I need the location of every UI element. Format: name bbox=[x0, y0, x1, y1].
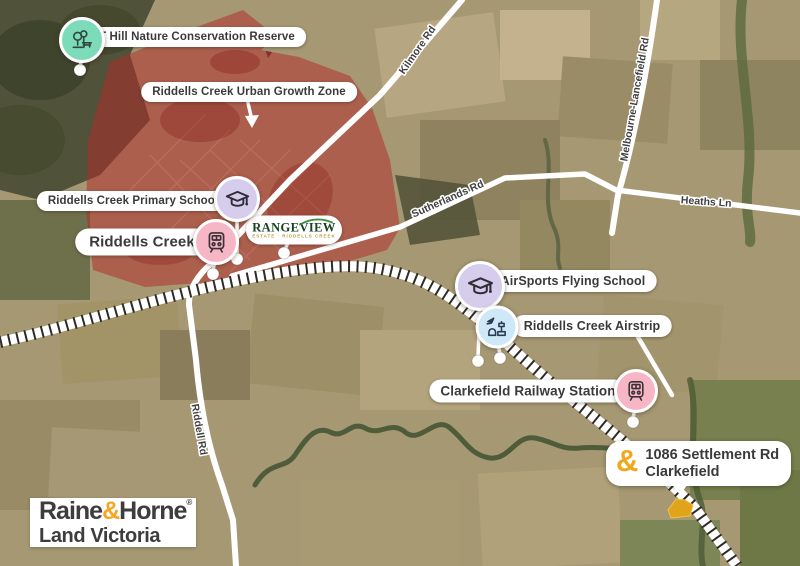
marker-nature-reserve bbox=[59, 17, 105, 63]
rangeview-estate-logo: RANGEVIEW ESTATE · RIDDELLS CREEK bbox=[246, 216, 342, 245]
marker-riddells-creek-train bbox=[193, 219, 239, 265]
property-address-text: 1086 Settlement Rd Clarkefield bbox=[645, 447, 779, 480]
label-primary-school: Riddells Creek Primary School bbox=[37, 191, 229, 211]
label-riddells-creek-airstrip: Riddells Creek Airstrip bbox=[513, 315, 672, 337]
airport-tower-icon bbox=[485, 315, 510, 340]
rangeview-swoosh-icon bbox=[299, 216, 333, 226]
graduation-cap-icon bbox=[466, 272, 495, 301]
train-icon bbox=[624, 379, 648, 403]
road-label-heaths: Heaths Ln bbox=[680, 194, 731, 210]
raine-and-horne-wordmark: Raine&Horne® bbox=[39, 499, 196, 524]
park-trees-icon bbox=[69, 27, 95, 53]
property-address-line2: Clarkefield bbox=[645, 464, 719, 480]
aerial-map: Kilmore Rd Melbourne-Lancefield Rd Suthe… bbox=[0, 0, 800, 566]
graduation-cap-icon bbox=[224, 186, 251, 213]
marker-clarkefield-train bbox=[614, 369, 658, 413]
marker-airsports-school bbox=[455, 261, 505, 311]
label-urban-growth-zone: Riddells Creek Urban Growth Zone bbox=[141, 82, 357, 102]
ampersand-icon: & bbox=[616, 449, 638, 474]
label-riddells-creek-town: Riddells Creek bbox=[75, 229, 209, 256]
logo-land-victoria: Land Victoria bbox=[39, 526, 196, 546]
train-icon bbox=[204, 230, 229, 255]
label-nature-reserve: T Hill Nature Conservation Reserve bbox=[88, 27, 306, 47]
marker-primary-school bbox=[214, 176, 260, 222]
logo-horne: Horne bbox=[119, 497, 186, 525]
logo-ampersand: & bbox=[102, 497, 119, 525]
property-address-line1: 1086 Settlement Rd bbox=[645, 447, 779, 463]
logo-raine: Raine bbox=[39, 497, 102, 525]
property-address-label: & 1086 Settlement Rd Clarkefield bbox=[606, 441, 791, 486]
label-airsports-flying-school: AirSports Flying School bbox=[490, 270, 657, 292]
marker-airstrip bbox=[476, 306, 519, 349]
label-clarkefield-station: Clarkefield Railway Station bbox=[429, 380, 626, 403]
property-pointer bbox=[672, 484, 688, 495]
rangeview-subtitle: ESTATE · RIDDELLS CREEK bbox=[252, 235, 336, 240]
registered-mark: ® bbox=[186, 498, 192, 507]
raine-and-horne-logo: Raine&Horne® Land Victoria bbox=[30, 498, 196, 547]
